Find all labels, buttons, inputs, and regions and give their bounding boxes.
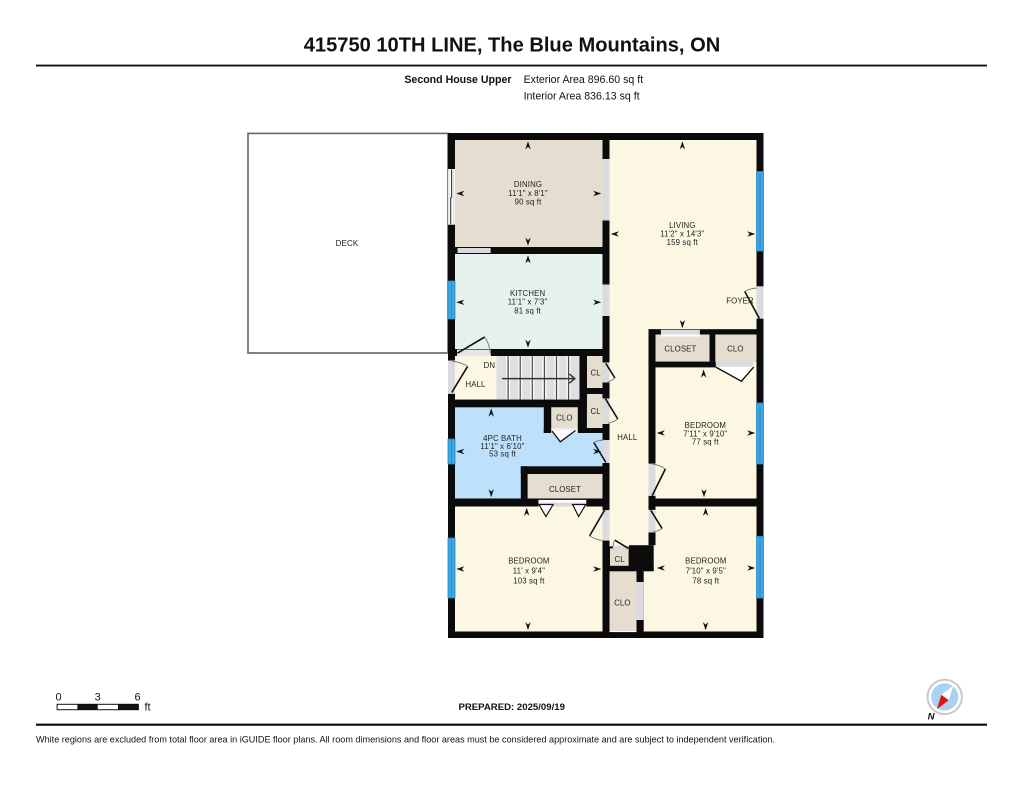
svg-text:CLO: CLO — [614, 599, 630, 608]
svg-text:PREPARED: 2025/09/19: PREPARED: 2025/09/19 — [458, 702, 564, 713]
svg-text:103 sq ft: 103 sq ft — [513, 576, 545, 585]
svg-text:DECK: DECK — [336, 239, 359, 248]
svg-text:CLOSET: CLOSET — [664, 344, 696, 353]
svg-text:6: 6 — [135, 691, 141, 703]
svg-text:White regions are excluded fro: White regions are excluded from total fl… — [36, 735, 775, 745]
svg-text:HALL: HALL — [617, 433, 638, 442]
svg-text:N: N — [928, 712, 936, 723]
svg-text:Interior Area 836.13 sq ft: Interior Area 836.13 sq ft — [524, 91, 640, 103]
svg-text:CL: CL — [614, 555, 625, 564]
svg-text:CLOSET: CLOSET — [549, 485, 581, 494]
svg-text:DINING: DINING — [514, 180, 542, 189]
svg-text:159 sq ft: 159 sq ft — [667, 238, 699, 247]
svg-text:415750 10TH LINE, The Blue Mou: 415750 10TH LINE, The Blue Mountains, ON — [304, 35, 720, 57]
svg-text:11'1" x 7'3": 11'1" x 7'3" — [508, 298, 548, 307]
svg-text:HALL: HALL — [465, 380, 486, 389]
svg-text:77 sq ft: 77 sq ft — [692, 438, 719, 447]
svg-text:11' x 9'4": 11' x 9'4" — [513, 567, 545, 576]
svg-text:Exterior Area 896.60 sq ft: Exterior Area 896.60 sq ft — [524, 74, 644, 86]
svg-text:81 sq ft: 81 sq ft — [514, 306, 541, 315]
svg-text:ft: ft — [145, 701, 151, 713]
svg-text:CLO: CLO — [556, 414, 572, 423]
svg-text:BEDROOM: BEDROOM — [685, 557, 726, 566]
svg-text:Second House Upper: Second House Upper — [404, 74, 511, 86]
svg-text:90 sq ft: 90 sq ft — [515, 198, 542, 207]
svg-text:KITCHEN: KITCHEN — [510, 289, 545, 298]
svg-text:FOYER: FOYER — [726, 296, 754, 305]
svg-text:7'10" x 9'5": 7'10" x 9'5" — [686, 567, 726, 576]
svg-text:3: 3 — [95, 691, 101, 703]
svg-text:CL: CL — [590, 369, 601, 378]
svg-text:CLO: CLO — [727, 344, 743, 353]
svg-text:78 sq ft: 78 sq ft — [692, 576, 719, 585]
svg-text:DN: DN — [484, 361, 496, 370]
svg-text:CL: CL — [590, 407, 601, 416]
svg-text:0: 0 — [55, 691, 61, 703]
svg-text:BEDROOM: BEDROOM — [508, 557, 549, 566]
svg-text:53 sq ft: 53 sq ft — [489, 450, 516, 459]
